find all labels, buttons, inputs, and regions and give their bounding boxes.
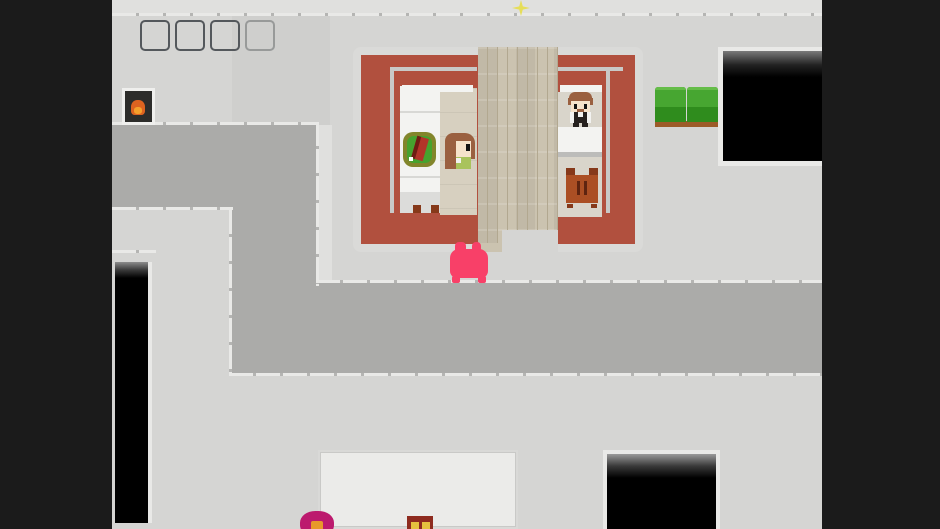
house-inner-line: [606, 67, 610, 213]
man-hair: [590, 98, 593, 105]
sofa-cushion-top: [687, 87, 718, 107]
slime-foot: [478, 276, 486, 283]
house-inner-line: [390, 67, 394, 213]
black-pit: [115, 262, 152, 523]
top-wall-band: [112, 0, 822, 13]
player-slime[interactable]: [450, 242, 488, 284]
cabinet-foot: [567, 204, 573, 208]
bed-seam: [400, 176, 440, 178]
flower[interactable]: [300, 511, 334, 529]
road-edge-bottom-top: [316, 280, 822, 283]
npc-girl[interactable]: [445, 133, 475, 169]
shop-counter[interactable]: [558, 127, 602, 152]
sofa-cushion: [687, 87, 718, 122]
slime-body: [450, 249, 488, 278]
man-arm: [570, 112, 574, 123]
girl-hair: [471, 143, 475, 159]
man-shirt: [578, 112, 583, 117]
sidewalk-strip: [319, 125, 332, 283]
game-screenshot: [0, 0, 940, 529]
cabinet[interactable]: [566, 168, 598, 208]
girl-sleeve: [456, 158, 461, 163]
cabinet-body: [566, 175, 598, 203]
pit-edge: [112, 250, 156, 253]
chest-panel: [422, 522, 430, 529]
npc-bartender[interactable]: [566, 92, 595, 127]
dark-room-entrance[interactable]: [718, 47, 822, 166]
sofa-cushion: [655, 87, 686, 122]
window-frame-outline-1: [140, 20, 170, 51]
slime-foot: [452, 276, 460, 283]
house-inner-line: [390, 67, 477, 71]
chest[interactable]: [407, 516, 433, 529]
window-frame-outline-2: [175, 20, 205, 51]
chest-panel: [411, 522, 419, 529]
road-edge-right: [316, 122, 319, 286]
man-eye: [584, 104, 587, 109]
sofa-cushion-top: [655, 87, 686, 107]
bed-seam: [400, 111, 440, 113]
letterbox-left: [0, 0, 112, 529]
girl-hair: [445, 145, 456, 169]
man-vest: [570, 112, 591, 123]
top-wall-edge: [112, 13, 822, 16]
flower-center: [311, 521, 323, 529]
road-edge-left: [229, 210, 232, 373]
plate-highlight: [409, 157, 413, 161]
cabinet-foot: [591, 204, 597, 208]
counter-shadow: [558, 152, 602, 157]
road-edge-corner: [112, 207, 233, 210]
window-frame-outline-4: [245, 20, 275, 51]
man-arm: [587, 112, 591, 123]
man-face: [571, 101, 590, 112]
bed-leg: [413, 205, 421, 213]
counter-back-strip: [560, 85, 602, 92]
wood-floor-corridor: [478, 47, 558, 243]
window-frame-outline-3: [210, 20, 240, 51]
sofa[interactable]: [655, 87, 718, 128]
fireplace[interactable]: [122, 88, 155, 125]
letterbox-right: [822, 0, 940, 529]
bed-foot: [400, 192, 440, 213]
house-inner-line: [558, 67, 623, 71]
cabinet-door-slit: [584, 181, 587, 195]
road-edge-bottom: [229, 373, 822, 376]
bed-leg: [431, 205, 439, 213]
flame-core-icon: [134, 107, 142, 114]
game-viewport[interactable]: [112, 0, 822, 529]
food-plate[interactable]: [403, 132, 436, 167]
dark-doorway[interactable]: [603, 450, 720, 529]
girl-eye: [466, 144, 470, 151]
cabinet-door-slit: [577, 181, 580, 195]
south-door-threshold: [502, 230, 558, 252]
